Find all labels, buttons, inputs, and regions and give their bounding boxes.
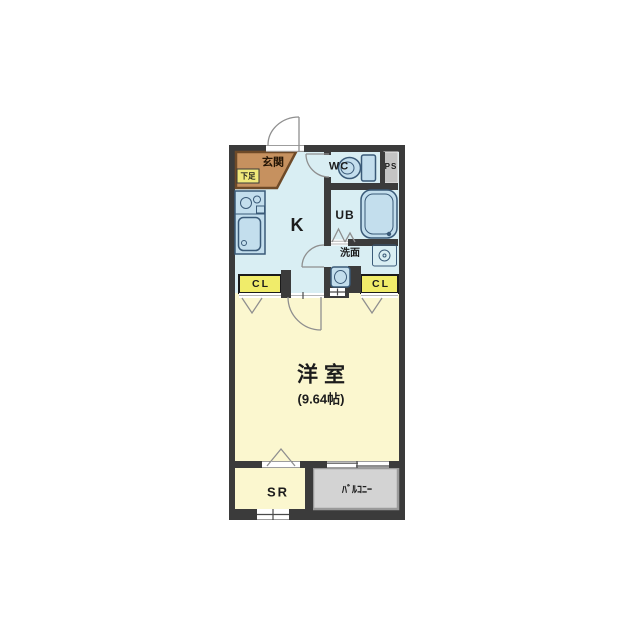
main-room-label: 洋室 xyxy=(297,365,351,386)
bathtub-icon xyxy=(361,190,397,238)
shoe-box-label: 下足 xyxy=(241,172,256,180)
entrance-door-opening xyxy=(266,146,304,152)
kitchen-label: K xyxy=(291,216,304,234)
kitchen-counter-icon xyxy=(235,191,265,254)
balcony-label: ﾊﾞﾙｺﾆｰ xyxy=(342,486,372,496)
storage-label: SR xyxy=(267,486,289,499)
main-room-size-label: (9.64帖) xyxy=(298,393,345,406)
unit-bath-label: UB xyxy=(335,209,354,221)
entrance-label: 玄関 xyxy=(262,158,284,169)
wc-label: WC xyxy=(329,162,349,173)
washroom-label: 洗面 xyxy=(340,249,360,259)
closet-left-label: CL xyxy=(252,279,270,290)
pipe-space-label: PS xyxy=(385,163,398,171)
floor-plan-drawing xyxy=(0,0,639,640)
closet-right-label: CL xyxy=(372,279,390,290)
wash-basin-icon xyxy=(331,267,350,287)
floor-plan-page: 玄関 下足 WC PS K UB 洗面 CL CL 洋室 (9.64帖) SR … xyxy=(0,0,639,640)
kitchen-sink-icon xyxy=(239,218,261,251)
